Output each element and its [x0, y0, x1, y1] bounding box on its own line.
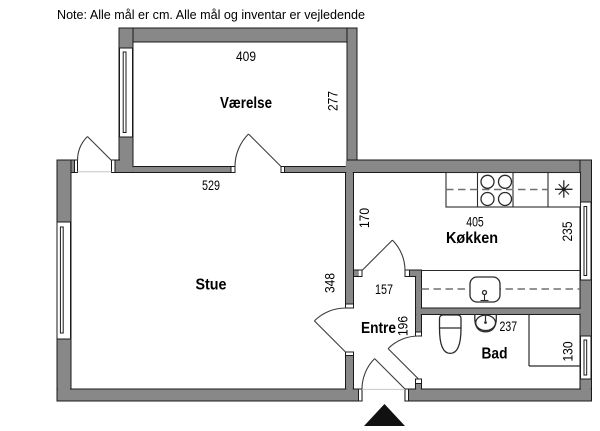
svg-text:Stue: Stue: [196, 277, 227, 294]
svg-text:405: 405: [466, 215, 484, 230]
svg-text:Note: Alle mål er cm. Alle mål: Note: Alle mål er cm. Alle mål og invent…: [57, 7, 365, 22]
svg-text:409: 409: [236, 49, 256, 64]
svg-text:235: 235: [560, 222, 575, 242]
svg-text:130: 130: [560, 342, 575, 362]
svg-text:Værelse: Værelse: [220, 95, 272, 112]
svg-text:237: 237: [500, 319, 518, 334]
svg-text:529: 529: [202, 178, 220, 193]
svg-text:196: 196: [396, 316, 411, 336]
svg-text:277: 277: [326, 91, 341, 111]
svg-text:170: 170: [357, 208, 372, 228]
svg-text:157: 157: [375, 282, 393, 297]
svg-text:Bad: Bad: [482, 346, 508, 363]
svg-text:348: 348: [323, 273, 338, 293]
svg-text:Køkken: Køkken: [446, 230, 498, 247]
svg-text:Entre: Entre: [361, 320, 396, 337]
